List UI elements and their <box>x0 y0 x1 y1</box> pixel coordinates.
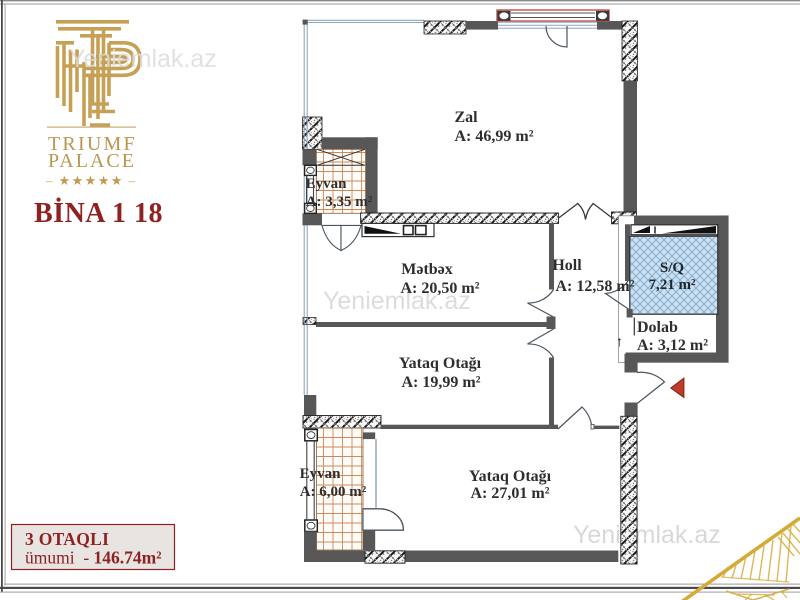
svg-text:Eyvan: Eyvan <box>300 466 342 482</box>
svg-text:A: 20,50 m²: A: 20,50 m² <box>400 280 479 297</box>
svg-text:A: 3,12 m²: A: 3,12 m² <box>637 337 708 354</box>
svg-text:A: 27,01 m²: A: 27,01 m² <box>470 485 549 502</box>
svg-text:Yataq Otağı: Yataq Otağı <box>399 355 482 372</box>
svg-text:Yeniemlak.az: Yeniemlak.az <box>573 521 721 549</box>
svg-text:3 OTAQLI: 3 OTAQLI <box>25 529 109 549</box>
svg-text:Holl: Holl <box>552 257 582 274</box>
svg-text:Mətbəx: Mətbəx <box>401 261 453 278</box>
svg-text:BİNA 1 18: BİNA 1 18 <box>34 198 163 229</box>
svg-text:↑: ↑ <box>616 333 623 349</box>
svg-text:A: 6,00 m²: A: 6,00 m² <box>300 484 367 500</box>
svg-text:Zal: Zal <box>454 109 478 126</box>
svg-text:Eyvan: Eyvan <box>306 176 348 192</box>
svg-text:A: 3,35 m²: A: 3,35 m² <box>306 194 373 210</box>
svg-text:Yeniemlak.az: Yeniemlak.az <box>69 45 217 73</box>
svg-text:ümumi - 146.74m²: ümumi - 146.74m² <box>25 548 162 568</box>
svg-text:A: 46,99 m²: A: 46,99 m² <box>454 128 533 145</box>
svg-text:A: 12,58 m²: A: 12,58 m² <box>555 278 634 295</box>
svg-text:7,21 m²: 7,21 m² <box>649 277 696 293</box>
svg-text:S/Q: S/Q <box>660 260 685 276</box>
svg-text:PALACE: PALACE <box>48 150 136 172</box>
svg-text:A: 19,99 m²: A: 19,99 m² <box>401 374 480 391</box>
svg-text:Yataq Otağı: Yataq Otağı <box>469 468 552 485</box>
svg-text:– ★★★★★ –: – ★★★★★ – <box>45 173 136 188</box>
svg-text:Dolab: Dolab <box>637 319 678 336</box>
